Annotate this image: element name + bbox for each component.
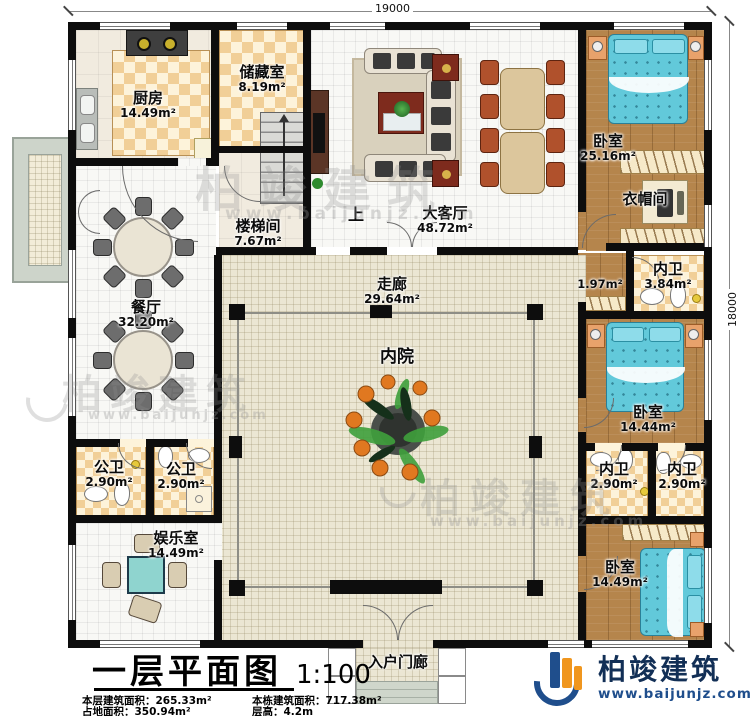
bed [606, 322, 684, 412]
dining-table-long [500, 132, 545, 194]
burner [163, 37, 177, 51]
wall [578, 432, 586, 556]
window [68, 545, 76, 620]
stair-up-label: 上 [344, 206, 368, 224]
wall [146, 439, 188, 447]
courtyard-plant [342, 374, 454, 486]
column [370, 305, 392, 318]
room-label-corridor: 走廊29.64m² [347, 276, 437, 306]
window [704, 548, 712, 623]
window [548, 640, 584, 648]
window [100, 22, 170, 30]
dining-chair [480, 94, 499, 119]
wall [578, 302, 586, 398]
column [229, 580, 245, 596]
wall [68, 158, 178, 166]
window [704, 205, 712, 247]
column [229, 304, 245, 320]
window [330, 22, 385, 30]
stat-storey-height: 层高：4.2m [252, 704, 313, 716]
title-text: 一层平面图 [92, 644, 282, 693]
top-dimension-label: 19000 [372, 2, 413, 15]
sofa-right [426, 70, 456, 162]
stat-land-area: 占地面积：350.94m² [82, 704, 191, 716]
room-label-dining: 餐厅32.20m² [101, 299, 191, 329]
floor-plan: 19000 18000 [0, 0, 750, 716]
room-label-storage: 储藏室8.19m² [217, 64, 307, 94]
wall [606, 243, 712, 251]
wall [685, 443, 712, 451]
title-underline [94, 688, 294, 691]
wall [206, 158, 218, 166]
round-table-set [106, 323, 180, 397]
sink-basin [80, 95, 95, 115]
wall [586, 443, 595, 451]
column [330, 580, 442, 594]
bath-accessory [692, 294, 701, 303]
wall [214, 560, 222, 640]
kitchen-sink-counter [76, 88, 98, 150]
column [529, 436, 542, 458]
wall [68, 439, 120, 447]
wall [622, 443, 658, 451]
room-label-pubbath2: 公卫2.90m² [150, 461, 212, 491]
coffee-table [378, 92, 424, 134]
wall [219, 146, 305, 153]
bed [608, 34, 688, 124]
dining-table-long [500, 68, 545, 130]
door-opening [178, 158, 206, 166]
room-label-passage: 1.97m² [568, 278, 632, 291]
right-dimension-label: 18000 [726, 289, 739, 330]
room-label-bath3: 内卫2.90m² [650, 461, 714, 491]
stair-arrow [283, 122, 285, 196]
window [704, 60, 712, 130]
table-plant [394, 101, 410, 117]
window [68, 250, 76, 318]
wall [350, 247, 387, 255]
column [229, 436, 242, 458]
dining-chair [480, 128, 499, 153]
room-label-bedroom1: 卧室25.16m² [563, 133, 653, 163]
stove [126, 30, 188, 56]
side-table [432, 160, 459, 187]
drawing-title: 一层平面图 1:100 [92, 644, 371, 693]
wall [214, 439, 218, 447]
window [237, 22, 287, 30]
side-table [432, 54, 459, 81]
door-opening [363, 640, 433, 648]
room-label-kitchen: 厨房14.49m² [103, 90, 193, 120]
title-scale: 1:100 [296, 660, 371, 690]
wall [214, 255, 222, 447]
tv [313, 113, 325, 153]
room-label-stair: 楼梯间7.67m² [213, 218, 303, 248]
room-label-bath1: 内卫3.84m² [628, 261, 708, 291]
brand-company-name: 柏竣建筑 [598, 648, 722, 688]
brand-logo-icon [534, 648, 592, 710]
column [527, 580, 543, 596]
wall [437, 247, 578, 255]
dining-chair [480, 162, 499, 187]
window [68, 60, 76, 130]
wall [586, 516, 712, 524]
wall [586, 311, 712, 319]
nightstand [690, 532, 704, 547]
brand-website: www.baijunjz.com [598, 686, 750, 702]
window [68, 338, 76, 416]
dining-chair [480, 60, 499, 85]
room-label-courtyard: 内院 [352, 348, 442, 367]
nightstand [690, 622, 704, 637]
window [470, 22, 540, 30]
game-chair [102, 562, 121, 588]
game-chair [168, 562, 187, 588]
nightstand [688, 36, 704, 60]
nightstand [587, 324, 605, 348]
burner [137, 37, 151, 51]
window [614, 22, 684, 30]
plant-small [312, 178, 323, 189]
window [592, 640, 688, 648]
room-label-cloak: 衣帽间 [600, 191, 690, 208]
room-label-living: 大客厅48.72m² [395, 205, 495, 235]
dining-chair [546, 60, 565, 85]
room-label-bedroom2: 卧室14.44m² [603, 404, 693, 434]
window [704, 340, 712, 420]
nightstand [685, 324, 703, 348]
room-label-pubbath1: 公卫2.90m² [78, 459, 140, 489]
wall [214, 447, 222, 523]
room-label-game: 娱乐室14.49m² [131, 530, 221, 560]
room-label-bedroom3: 卧室14.49m² [575, 559, 665, 589]
shoe-rack [582, 296, 626, 311]
wall [68, 515, 218, 523]
sink-basin [80, 123, 95, 143]
room-label-bath2: 内卫2.90m² [582, 461, 646, 491]
wall [578, 22, 586, 212]
game-table [127, 556, 165, 594]
stair-arrow-head [279, 114, 289, 122]
nightstand [588, 36, 607, 60]
balcony-inner [28, 154, 62, 266]
column [527, 304, 543, 320]
wall [303, 22, 311, 255]
dining-chair [546, 94, 565, 119]
dining-chair [546, 162, 565, 187]
right-dimension-line [729, 22, 730, 648]
